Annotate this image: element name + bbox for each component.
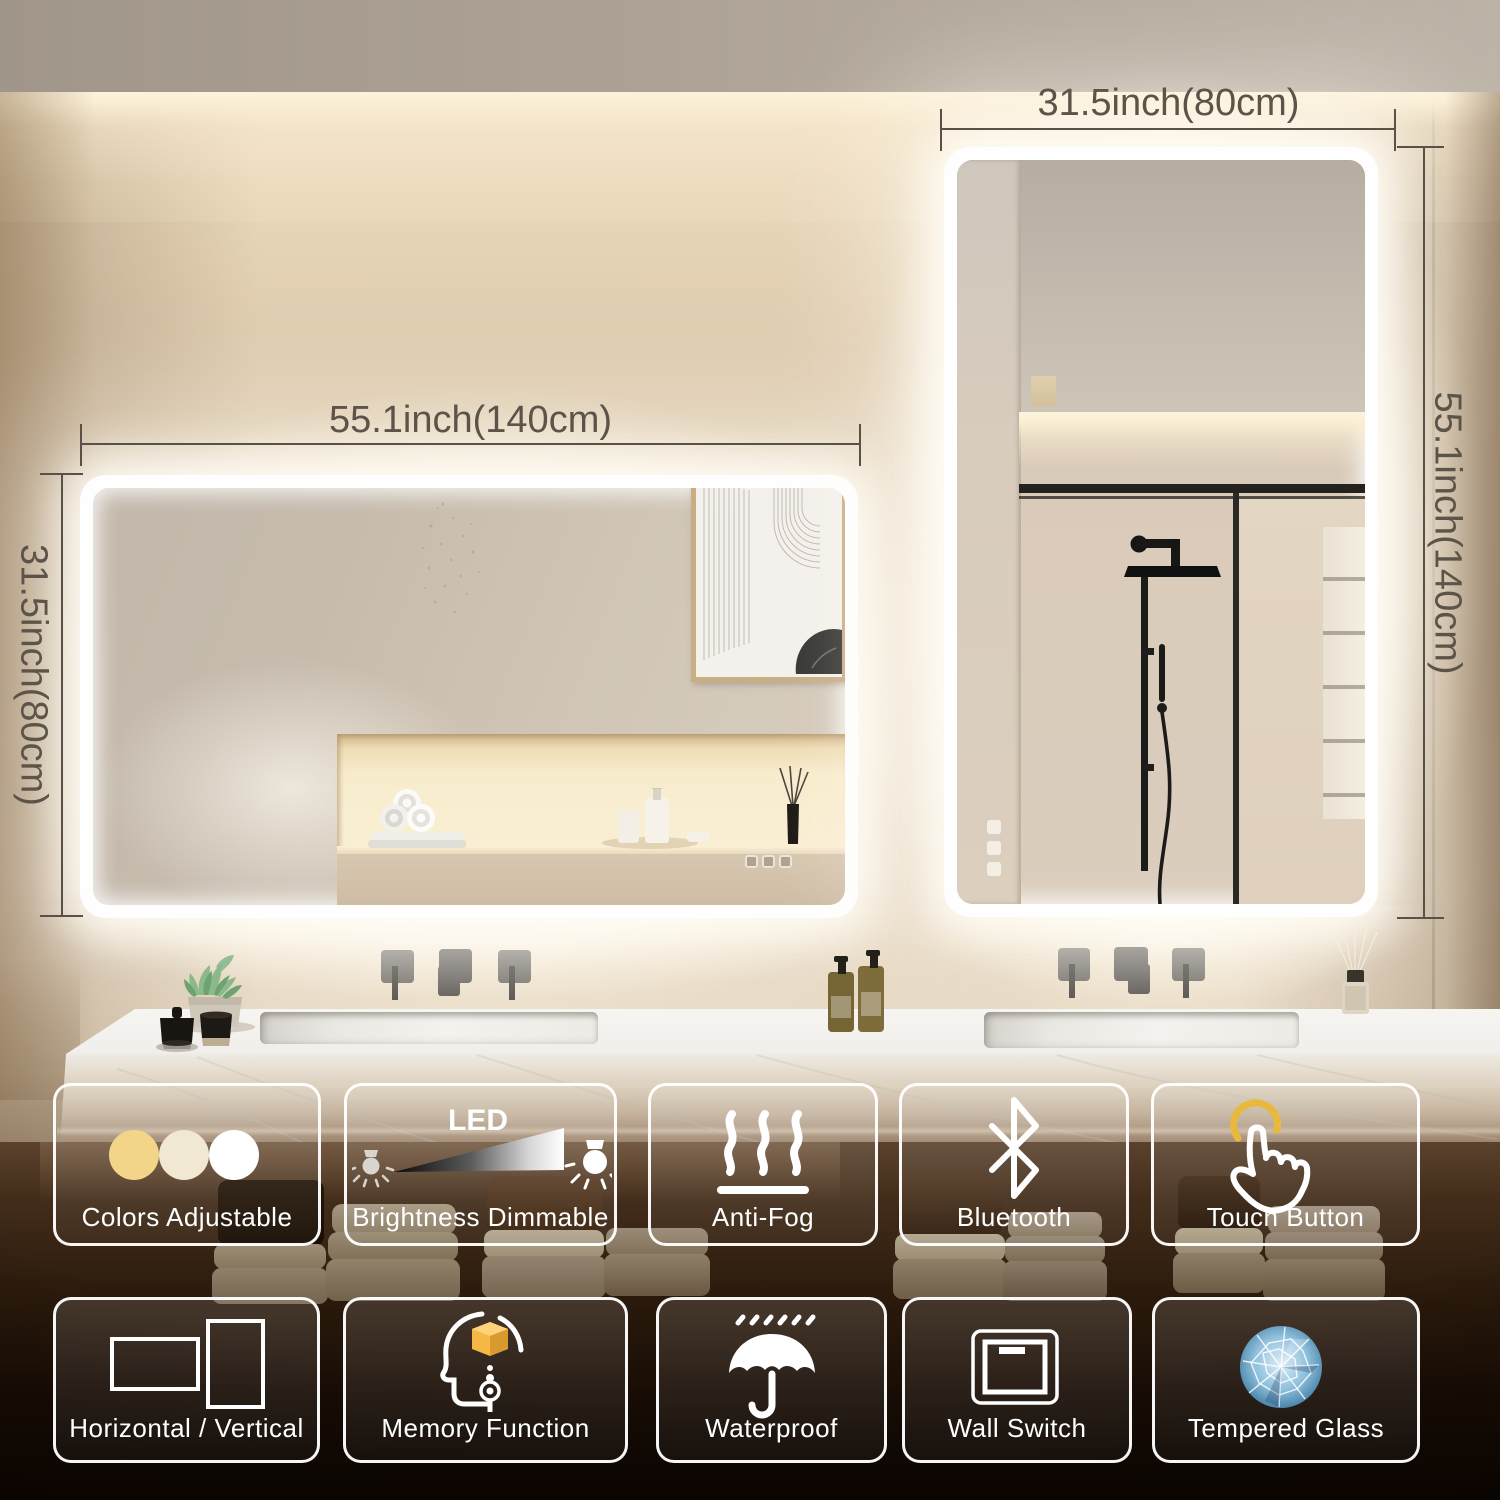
svg-text:LED: LED bbox=[448, 1104, 508, 1137]
